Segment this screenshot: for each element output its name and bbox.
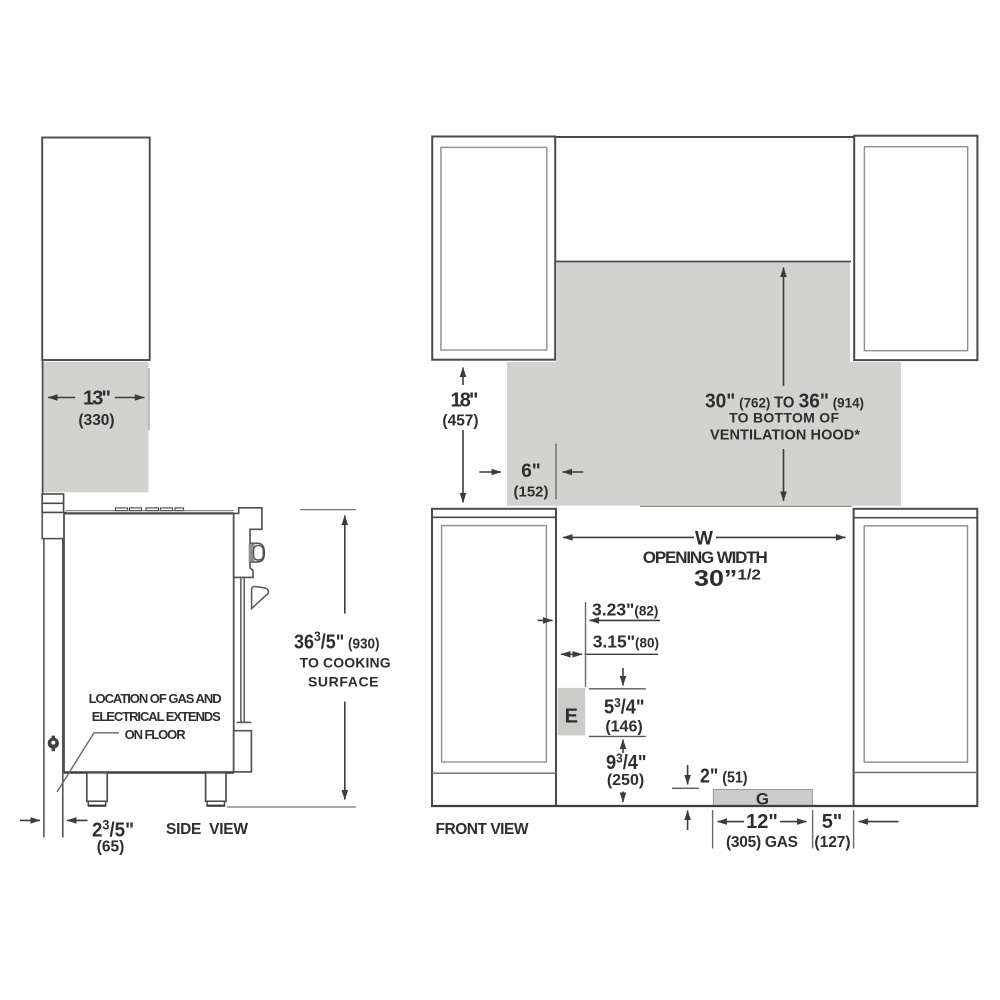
svg-text:TO BOTTOM OF: TO BOTTOM OF [729, 410, 839, 426]
svg-text:2" (51): 2" (51) [700, 766, 748, 788]
svg-text:93/4": 93/4" [606, 751, 647, 775]
svg-text:E: E [565, 706, 578, 728]
svg-text:(250): (250) [607, 772, 644, 789]
svg-text:FRONT VIEW: FRONT VIEW [436, 821, 529, 838]
svg-text:(127): (127) [814, 834, 850, 851]
svg-text:ELECTRICAL EXTENDS: ELECTRICAL EXTENDS [92, 709, 221, 724]
svg-text:TO COOKING: TO COOKING [300, 655, 391, 671]
svg-text:VENTILATION HOOD*: VENTILATION HOOD* [710, 428, 860, 444]
svg-text:18": 18" [451, 390, 479, 412]
svg-text:13": 13" [83, 388, 111, 410]
svg-text:(305) GAS: (305) GAS [726, 834, 798, 851]
svg-text:(65): (65) [97, 839, 125, 856]
svg-text:W: W [695, 529, 713, 550]
svg-text:LOCATION OF GAS AND: LOCATION OF GAS AND [89, 691, 222, 706]
svg-text:12": 12" [746, 811, 778, 833]
svg-text:(146): (146) [605, 719, 642, 736]
svg-text:(152): (152) [513, 484, 548, 501]
svg-text:6": 6" [521, 461, 541, 482]
svg-text:5": 5" [822, 811, 843, 833]
svg-text:SIDE VIEW: SIDE VIEW [166, 821, 248, 838]
svg-text:SURFACE: SURFACE [308, 674, 379, 690]
svg-text:(457): (457) [442, 413, 478, 430]
svg-text:53/4": 53/4" [604, 695, 645, 719]
svg-text:(330): (330) [78, 412, 114, 429]
svg-text:ON FLOOR: ON FLOOR [125, 727, 187, 742]
